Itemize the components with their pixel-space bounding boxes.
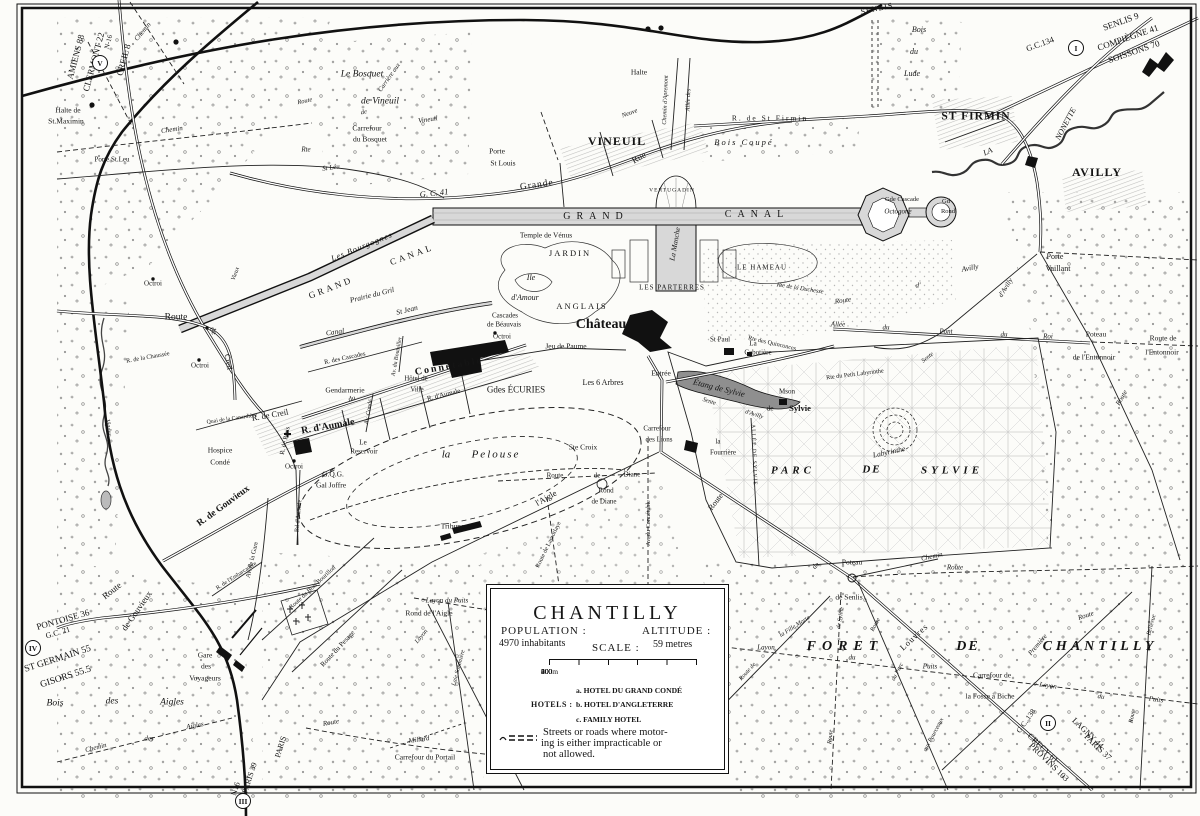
map-label: Rte [301, 147, 310, 154]
map-label: Roi [1043, 334, 1053, 341]
map-label: Rond [598, 488, 613, 495]
map-label: Lude [904, 70, 920, 78]
map-label: LES PARTERRES [639, 285, 705, 292]
map-label: Ile [527, 274, 535, 282]
map-label: Vaillant [1046, 265, 1071, 273]
map-label: Viaduc [104, 419, 113, 437]
map-label: JARDIN [549, 249, 591, 258]
map-label: ANGLAIS [556, 302, 607, 311]
map-label: de Diane [591, 499, 616, 506]
map-label: Le [359, 440, 366, 447]
map-label: Temple de Vénus [520, 231, 572, 239]
scale-tick: 500m [541, 668, 558, 676]
map-label: des [201, 662, 211, 670]
map-label: Condé [210, 458, 230, 466]
map-label: Hôtel de [404, 377, 427, 384]
map-label: PARC [771, 466, 815, 477]
scale-label: SCALE : [592, 643, 640, 654]
map-label: Octroi [493, 334, 511, 341]
map-label: Route [165, 313, 188, 323]
map-label: Carrefour du Portail [395, 753, 455, 761]
map-label: Layon [757, 645, 775, 652]
map-label: Route de [1150, 334, 1177, 342]
map-label: St Paul [710, 337, 730, 344]
map-label: Aigles [160, 698, 184, 708]
map-label: Les 6 Arbres [583, 379, 624, 387]
map-label: d' [916, 283, 921, 290]
map-label: Carrefour [352, 124, 381, 132]
map-label: Ville [410, 388, 423, 395]
map-label: Tribunes [441, 522, 467, 530]
map-label: Route [947, 565, 963, 572]
map-label: LE HAMEAU [737, 265, 787, 272]
route-marker: III [235, 793, 251, 809]
map-label: St.Maximin [48, 117, 84, 125]
map-label: Carrefour de [973, 671, 1011, 679]
map-label: Halte [631, 68, 647, 76]
map-label: CHANTILLY [1043, 640, 1158, 654]
map-label: Entrée [651, 369, 671, 377]
map-label: Diane [624, 472, 641, 479]
map-label: la [715, 439, 720, 446]
route-marker: II [1040, 715, 1056, 731]
map-label: Porte St.Leu [95, 157, 130, 164]
map-label: Reservoir [350, 449, 377, 456]
map-label: Mson [779, 389, 795, 396]
map-label: Gal Joffre [316, 481, 346, 489]
map-label: Gare [198, 651, 213, 659]
map-label: Layon du Puits [426, 598, 468, 605]
map-label: du [1001, 332, 1008, 339]
map-label: Gd [942, 199, 950, 206]
route-marker: IV [25, 640, 41, 656]
map-label: Octroi [285, 464, 303, 471]
chantilly-map: .rd{stroke:#111;stroke-width:2.8;fill:no… [0, 0, 1200, 816]
map-label: Gdes ÉCURIES [487, 386, 545, 395]
map-label: Octroi [191, 363, 209, 370]
map-label: Rond [941, 209, 955, 216]
map-label: Rond de l'Aigle [405, 609, 452, 617]
map-label: Octogone [884, 209, 911, 216]
map-label: Pelouse [472, 450, 521, 461]
hotel-item: c. FAMILY HOTEL [576, 716, 641, 724]
map-label: Halte de [55, 106, 80, 114]
map-label: Poteau [1086, 330, 1106, 338]
map-label: Creil [223, 353, 234, 370]
map-label: de l'Entonnoir [1073, 353, 1115, 361]
quinconces [702, 240, 956, 342]
map-label: Octroi [144, 281, 162, 288]
map-label: de Béauvais [487, 322, 521, 329]
note-line: not allowed. [543, 750, 595, 761]
map-label: du [910, 48, 918, 56]
map-label: Puits [923, 664, 937, 671]
legend-box: CHANTILLY POPULATION : 4970 inhabitants … [486, 584, 729, 774]
map-label: Bois [47, 699, 64, 709]
map-label: G.Q.G. [322, 470, 344, 478]
map-label: Sylvie [789, 404, 811, 413]
route-marker: V [92, 55, 108, 71]
map-label: la Fosse à Biche [966, 692, 1015, 700]
route-marker: I [1068, 40, 1084, 56]
altitude-value: 59 metres [653, 640, 692, 650]
map-label: Carrefour [643, 426, 670, 433]
map-label: de Vineuil [361, 97, 399, 107]
map-label: Bois Coupé [714, 138, 773, 147]
map-label: DE [862, 465, 881, 476]
map-label: Route [547, 473, 564, 480]
map-label: Hospice [208, 446, 233, 454]
altitude-label: ALTITUDE : [642, 626, 711, 637]
map-label: Allée des [686, 89, 693, 112]
map-label: DE [956, 640, 979, 654]
map-label: ALLÉE DE SYLVIE [749, 424, 757, 486]
map-label: du Bosquet [353, 135, 387, 143]
map-label: l'Entonnoir [1145, 348, 1178, 356]
map-label: des Lions [645, 437, 672, 444]
map-label: St Louis [490, 159, 515, 167]
map-label: FORET [807, 640, 884, 654]
hotel-item: b. HOTEL D'ANGLETERRE [576, 701, 673, 709]
map-label: Bois [912, 26, 926, 34]
map-label: Fourrière [710, 450, 736, 457]
map-label: Voyageurs [189, 674, 221, 682]
map-label: Gde Cascade [885, 197, 919, 204]
map-label: Le Bosquet [341, 70, 383, 80]
hotel-item: a. HOTEL DU GRAND CONDÉ [576, 687, 682, 695]
map-label: la [442, 450, 451, 461]
map-label: des [106, 697, 119, 707]
map-label: AVILLY [1072, 166, 1122, 178]
map-label: de [766, 404, 773, 412]
map-label: du [849, 655, 856, 662]
map-label: Av. du Connétable [646, 500, 652, 546]
map-label: Ste Croix [569, 443, 598, 451]
map-label: VERTUGADIN [649, 188, 695, 194]
map-label: d'Amour [511, 294, 539, 302]
population-label: POPULATION : [501, 626, 587, 637]
map-label: du [1097, 693, 1105, 701]
map-label: Porte [1047, 253, 1064, 261]
note-line: Streets or roads where motor- [543, 728, 668, 739]
map-label: Poteau [842, 558, 862, 566]
map-label: VINEUIL [588, 135, 646, 147]
map-label: Gendarmerie [325, 386, 364, 394]
map-label: ST FIRMIN [941, 111, 1010, 123]
map-label: Château [576, 318, 627, 332]
map-label: de Senlis [835, 593, 862, 601]
legend-title: CHANTILLY [487, 603, 728, 623]
note-line: ing is either impracticable or [541, 739, 662, 750]
map-label: Porte [489, 147, 505, 155]
scale-bar [549, 659, 697, 665]
impracticable-road-icon [499, 733, 539, 743]
map-label: CANAL [725, 210, 789, 220]
population-value: 4970 inhabitants [499, 639, 565, 649]
hotels-label: HOTELS : [531, 701, 573, 709]
map-label: Pont [939, 329, 952, 336]
map-label: GRAND [563, 212, 629, 222]
map-label: Allée [831, 322, 845, 329]
map-label: Jeu de Paume [545, 342, 586, 350]
map-label: de [594, 473, 601, 480]
map-label: de [360, 109, 367, 117]
map-label: Cabotière [744, 350, 771, 357]
map-label: des [144, 736, 153, 743]
map-label: SYLVIE [921, 466, 983, 477]
map-label: R. de St Firmin [732, 114, 808, 122]
map-label: du [883, 325, 890, 332]
map-label: Cascades [492, 313, 518, 320]
